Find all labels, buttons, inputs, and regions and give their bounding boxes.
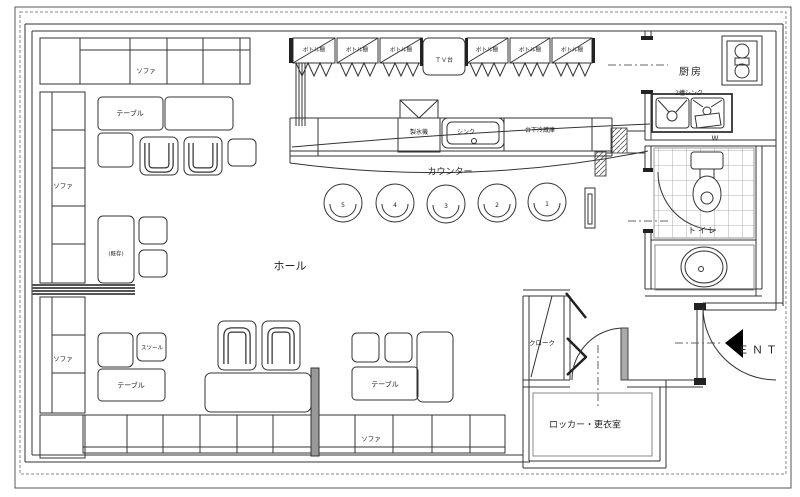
cloak-closet [531,296,570,380]
sofa-bench-bottom [83,415,505,453]
bottle-shelves [293,38,592,76]
kitchen-stove [722,36,762,85]
back-bar-counter [290,118,612,163]
sofa-bench-left-upper [40,92,85,283]
counter-end-post [585,188,595,228]
armchair-icons-center [226,330,292,364]
counter-stools [324,183,566,223]
tv-stand [423,38,465,75]
table-group-bottom-center [352,332,453,402]
kitchen-double-sink [652,94,732,132]
cloak-bifold-doors [566,293,586,375]
armchair-group-center [205,321,311,412]
table-group-bottom-left [98,333,166,401]
floor-plan-drawing [0,0,800,497]
bench-partition [311,368,319,456]
armchair-icons-top [147,143,215,170]
existing-table-group [98,216,167,283]
table-group-top [98,97,256,175]
wash-basin [655,245,754,290]
wall-hatch-piers [595,128,627,176]
locker-room-outline [533,393,652,456]
sofa-bench-top [40,38,250,84]
locker-door [572,328,628,380]
floor-plan: ソファ ソファ ソファ ソファ テーブル (既存) スツール テーブル テーブル… [0,0,800,497]
drawing-frame [15,7,791,488]
ice-maker-unit [398,100,440,152]
sofa-bench-left-lower [40,297,85,458]
entrance-arrow-icon [725,329,743,358]
divider-hatch-band [32,285,135,294]
